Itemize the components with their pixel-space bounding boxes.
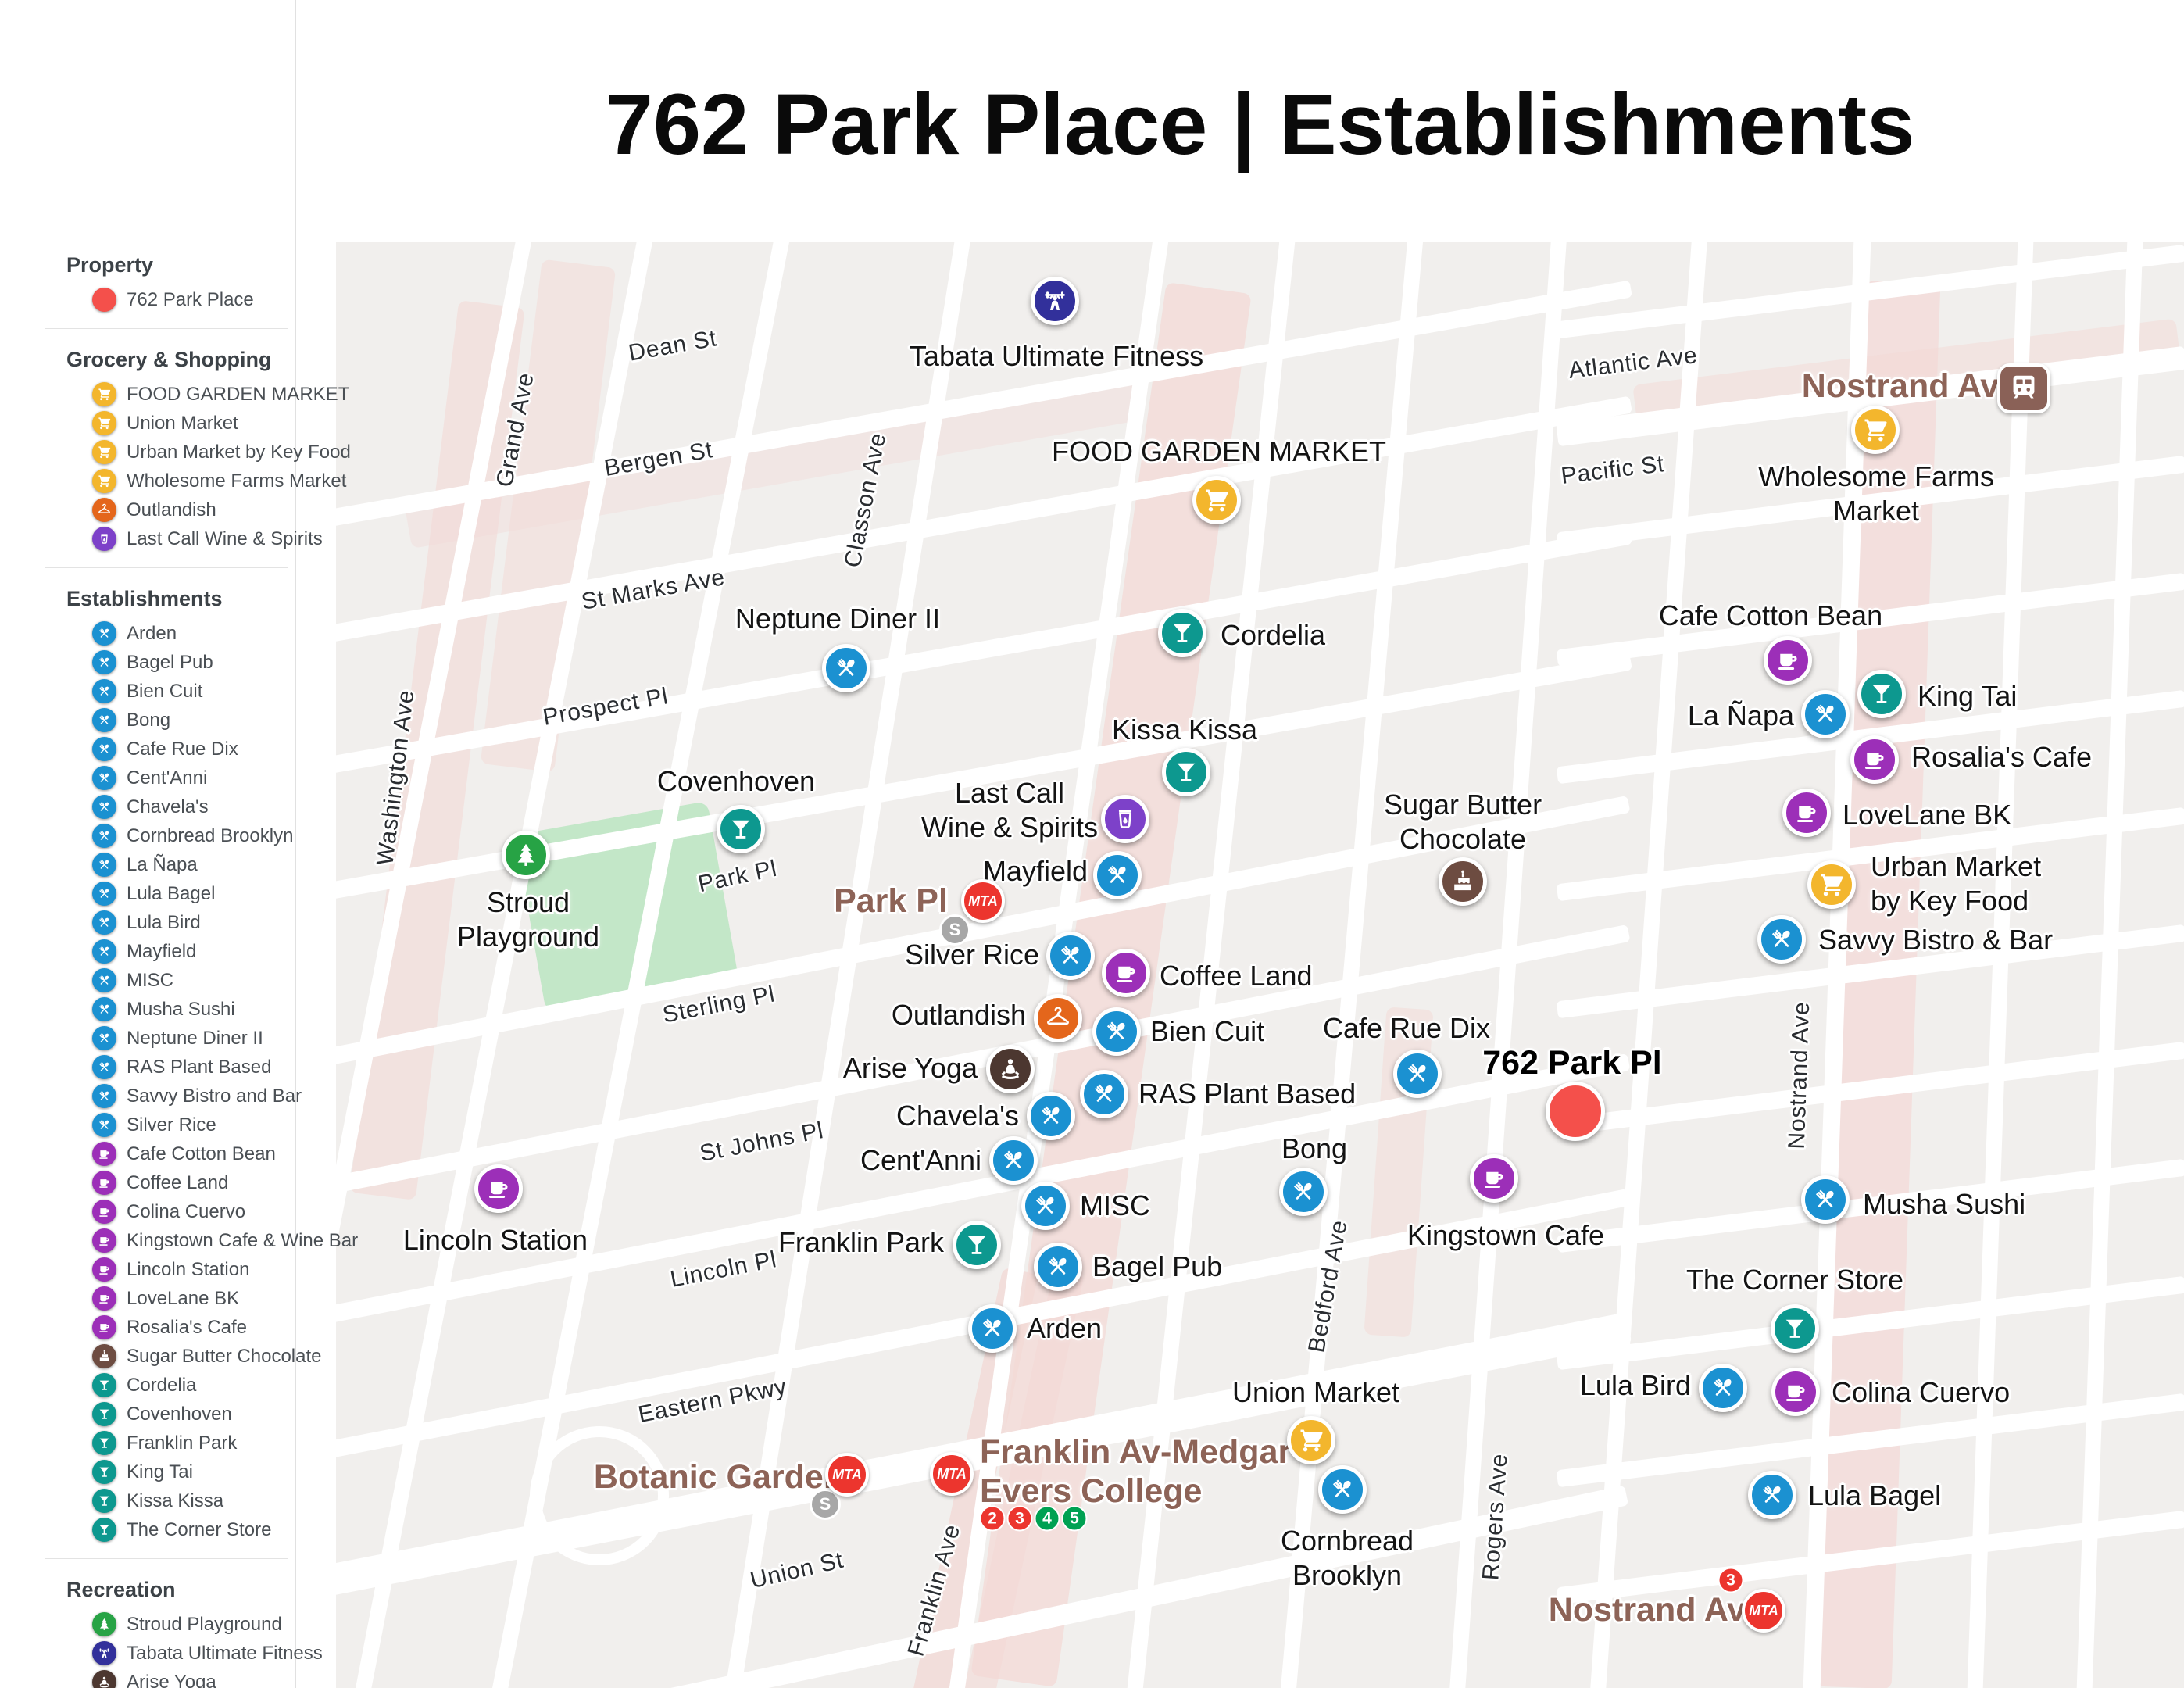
mta-logo[interactable]: MTA [961, 879, 1005, 923]
wholesome-farms-market-marker[interactable] [1851, 406, 1900, 454]
arise-yoga-marker[interactable] [986, 1045, 1035, 1093]
restaurant-icon [92, 1084, 116, 1108]
cafe-icon [484, 1175, 513, 1203]
grocery-icon [1297, 1426, 1325, 1454]
legend-item-cornbread-brooklyn[interactable]: Cornbread Brooklyn [66, 821, 288, 850]
outlandish-marker[interactable] [1034, 994, 1082, 1042]
the-corner-store-marker[interactable] [1771, 1304, 1819, 1353]
bar-icon [92, 1402, 116, 1426]
restaurant-icon [978, 1314, 1006, 1343]
legend-section-title: Grocery & Shopping [66, 348, 288, 372]
legend-item-label: Covenhoven [127, 1404, 232, 1425]
legend-item-misc[interactable]: MISC [66, 966, 288, 995]
legend-item-label: Urban Market by Key Food [127, 442, 351, 463]
legend-item-label: Silver Rice [127, 1114, 216, 1136]
grocery-icon [1861, 416, 1889, 444]
legend-item-label: Musha Sushi [127, 999, 235, 1021]
stroud-playground-marker[interactable] [502, 831, 550, 879]
grocery-icon [92, 411, 116, 435]
cafe-icon [1112, 959, 1140, 987]
legend-item-label: Lula Bird [127, 912, 201, 934]
grocery-icon [1203, 486, 1231, 514]
bar-icon [1868, 680, 1896, 708]
legend-item-label: Kingstown Cafe & Wine Bar [127, 1230, 358, 1252]
grocery-icon [92, 440, 116, 464]
legend-item-label: Wholesome Farms Market [127, 470, 346, 492]
last-call-wine-spirits-marker[interactable] [1101, 795, 1149, 843]
legend-item-label: Cafe Rue Dix [127, 738, 238, 760]
sweets-icon [1449, 867, 1477, 896]
route-badge-3: 3 [1007, 1506, 1033, 1532]
restaurant-icon [92, 795, 116, 819]
legend-section-title: Establishments [66, 587, 288, 611]
legend-item-label: RAS Plant Based [127, 1057, 271, 1078]
cafe-rue-dix-marker[interactable] [1393, 1050, 1442, 1098]
legend-item-label: La Ñapa [127, 854, 198, 876]
legend-item-label: Mayfield [127, 941, 196, 963]
legend-item-franklin-park[interactable]: Franklin Park [66, 1429, 288, 1457]
property-icon [1558, 1094, 1592, 1128]
bagel-pub-marker[interactable] [1034, 1243, 1082, 1291]
legend-item-label: The Corner Store [127, 1519, 271, 1541]
legend-item-urban-market-by-key-food[interactable]: Urban Market by Key Food [66, 438, 288, 467]
bar-icon [92, 1431, 116, 1455]
legend-item-last-call-wine-spirits[interactable]: Last Call Wine & Spirits [66, 524, 288, 553]
sugar-butter-chocolate-marker[interactable] [1439, 857, 1487, 906]
legend-item-label: Savvy Bistro and Bar [127, 1085, 302, 1107]
train-icon [2006, 370, 2042, 406]
lula-bird-marker[interactable] [1699, 1364, 1747, 1412]
legend-item-label: Colina Cuervo [127, 1201, 245, 1223]
cafe-icon [1861, 746, 1889, 774]
legend-item-union-market[interactable]: Union Market [66, 409, 288, 438]
restaurant-icon [1103, 1017, 1131, 1046]
restaurant-icon [1037, 1102, 1065, 1130]
legend-item-cordelia[interactable]: Cordelia [66, 1371, 288, 1400]
legend-item-label: Cordelia [127, 1375, 196, 1397]
restaurant-icon [92, 679, 116, 703]
legend-section-grocery-shopping: Grocery & ShoppingFOOD GARDEN MARKETUnio… [66, 348, 288, 553]
liquor-icon [92, 527, 116, 551]
cent-anni-marker[interactable] [989, 1136, 1038, 1185]
savvy-bistro-bar-marker[interactable] [1757, 915, 1806, 964]
musha-sushi-marker[interactable] [1801, 1175, 1850, 1224]
legend-section-title: Property [66, 253, 288, 277]
legend-item-silver-rice[interactable]: Silver Rice [66, 1110, 288, 1139]
bar-icon [92, 1489, 116, 1513]
restaurant-icon [92, 853, 116, 877]
legend-section-property: Property762 Park Place [66, 253, 288, 314]
sweets-icon [92, 1344, 116, 1368]
restaurant-icon [1811, 1186, 1839, 1214]
franklin-park-marker[interactable] [953, 1221, 1001, 1269]
king-tai-marker[interactable] [1857, 670, 1906, 718]
legend-item-label: Bong [127, 710, 170, 731]
legend-item-lula-bird[interactable]: Lula Bird [66, 908, 288, 937]
bar-icon [1168, 619, 1196, 647]
legend-item-label: Outlandish [127, 499, 216, 521]
legend-item-label: Bagel Pub [127, 652, 213, 674]
rosalia-s-cafe-marker[interactable] [1850, 735, 1899, 784]
legend-item-outlandish[interactable]: Outlandish [66, 495, 288, 524]
restaurant-icon [1044, 1253, 1072, 1281]
legend-item-label: Last Call Wine & Spirits [127, 528, 323, 550]
restaurant-icon [92, 997, 116, 1021]
fitness-icon [1041, 287, 1069, 315]
restaurant-icon [92, 882, 116, 906]
legend-item-arden[interactable]: Arden [66, 619, 288, 648]
legend-item-lincoln-station[interactable]: Lincoln Station [66, 1255, 288, 1284]
legend-item-colina-cuervo[interactable]: Colina Cuervo [66, 1197, 288, 1226]
762-park-pl-marker[interactable] [1546, 1082, 1605, 1141]
legend-item-label: Franklin Park [127, 1432, 237, 1454]
route-badge-3: 3 [1718, 1568, 1744, 1593]
restaurant-icon [1403, 1060, 1432, 1088]
route-badge-4: 4 [1035, 1506, 1060, 1532]
restaurant-icon [1758, 1481, 1786, 1509]
cordelia-marker[interactable] [1158, 609, 1206, 657]
bar-icon [92, 1518, 116, 1542]
bien-cuit-marker[interactable] [1092, 1007, 1141, 1056]
park-icon [512, 841, 540, 869]
colina-cuervo-marker[interactable] [1771, 1368, 1820, 1416]
lovelane-bk-marker[interactable] [1782, 789, 1831, 837]
mayfield-marker[interactable] [1093, 851, 1142, 899]
arden-marker[interactable] [968, 1304, 1017, 1353]
la-apa-marker[interactable] [1801, 690, 1850, 738]
legend-item-mayfield[interactable]: Mayfield [66, 937, 288, 966]
legend-item-label: Neptune Diner II [127, 1028, 263, 1050]
urban-market-by-key-food-marker[interactable] [1807, 860, 1856, 909]
silver-rice-marker[interactable] [1046, 932, 1095, 980]
legend-item-covenhoven[interactable]: Covenhoven [66, 1400, 288, 1429]
legend-section-recreation: RecreationStroud PlaygroundTabata Ultima… [66, 1578, 288, 1688]
restaurant-icon [832, 654, 860, 682]
legend-item-label: Stroud Playground [127, 1614, 282, 1636]
legend-item-savvy-bistro-and-bar[interactable]: Savvy Bistro and Bar [66, 1082, 288, 1110]
clothing-icon [1044, 1004, 1072, 1032]
route-badge-5: 5 [1062, 1506, 1088, 1532]
legend-item-label: Lula Bagel [127, 883, 215, 905]
legend-item-lula-bagel[interactable]: Lula Bagel [66, 879, 288, 908]
cafe-icon [92, 1200, 116, 1224]
legend-item-label: Cafe Cotton Bean [127, 1143, 276, 1165]
legend-item-label: Coffee Land [127, 1172, 228, 1194]
legend-item-la-apa[interactable]: La Ñapa [66, 850, 288, 879]
misc-marker[interactable] [1021, 1182, 1070, 1230]
legend-item-coffee-land[interactable]: Coffee Land [66, 1168, 288, 1197]
legend-item-label: Lincoln Station [127, 1259, 249, 1281]
legend-item-label: Cent'Anni [127, 767, 207, 789]
legend-item-tabata-ultimate-fitness[interactable]: Tabata Ultimate Fitness [66, 1639, 288, 1668]
legend-item-label: MISC [127, 970, 173, 992]
map-background[interactable] [336, 242, 2184, 1688]
legend-item-label: Arden [127, 623, 177, 645]
bar-icon [92, 1460, 116, 1484]
mta-logo[interactable]: MTA [1742, 1589, 1785, 1633]
legend-item-label: FOOD GARDEN MARKET [127, 384, 349, 406]
bar-icon [1781, 1314, 1809, 1343]
cafe-icon [1793, 799, 1821, 827]
lula-bagel-marker[interactable] [1748, 1471, 1796, 1519]
legend-item-label: Tabata Ultimate Fitness [127, 1643, 323, 1665]
cafe-icon [1782, 1378, 1810, 1406]
kingstown-cafe-marker[interactable] [1470, 1154, 1518, 1203]
chavela-s-marker[interactable] [1027, 1092, 1075, 1140]
lincoln-station-marker[interactable] [474, 1164, 523, 1213]
park-icon [92, 1612, 116, 1636]
legend-item-bagel-pub[interactable]: Bagel Pub [66, 648, 288, 677]
coffee-land-marker[interactable] [1102, 949, 1150, 997]
legend-item-label: Arise Yoga [127, 1672, 216, 1688]
legend-item-chavela-s[interactable]: Chavela's [66, 792, 288, 821]
restaurant-icon [92, 910, 116, 935]
restaurant-icon [1031, 1192, 1060, 1220]
restaurant-icon [1103, 861, 1131, 889]
legend-item-label: King Tai [127, 1461, 193, 1483]
ras-plant-based-marker[interactable] [1080, 1070, 1128, 1118]
bar-icon [92, 1373, 116, 1397]
cornbread-brooklyn-marker[interactable] [1318, 1465, 1367, 1514]
restaurant-icon [92, 1113, 116, 1137]
union-market-marker[interactable] [1287, 1416, 1335, 1464]
restaurant-icon [92, 650, 116, 674]
restaurant-icon [1709, 1374, 1737, 1402]
legend-item-bong[interactable]: Bong [66, 706, 288, 735]
liquor-icon [1111, 805, 1139, 833]
restaurant-icon [92, 1026, 116, 1050]
cafe-icon [92, 1257, 116, 1282]
bar-icon [963, 1231, 991, 1259]
train-station-icon [1997, 363, 2050, 413]
legend-item-ras-plant-based[interactable]: RAS Plant Based [66, 1053, 288, 1082]
legend-section-establishments: EstablishmentsArdenBagel PubBien CuitBon… [66, 587, 288, 1544]
legend-item-the-corner-store[interactable]: The Corner Store [66, 1515, 288, 1544]
cafe-icon [92, 1228, 116, 1253]
legend-item-label: Cornbread Brooklyn [127, 825, 293, 847]
legend-item-musha-sushi[interactable]: Musha Sushi [66, 995, 288, 1024]
restaurant-icon [92, 968, 116, 992]
restaurant-icon [92, 708, 116, 732]
legend-item-label: Bien Cuit [127, 681, 202, 703]
tabata-ultimate-fitness-marker[interactable] [1031, 277, 1079, 325]
cafe-icon [92, 1315, 116, 1339]
legend-item-food-garden-market[interactable]: FOOD GARDEN MARKET [66, 380, 288, 409]
clothing-icon [92, 498, 116, 522]
route-badge-2: 2 [980, 1506, 1006, 1532]
legend-item-neptune-diner-ii[interactable]: Neptune Diner II [66, 1024, 288, 1053]
cafe-icon [1480, 1164, 1508, 1193]
restaurant-icon [92, 737, 116, 761]
legend-item-label: Sugar Butter Chocolate [127, 1346, 321, 1368]
mta-logo[interactable]: MTA [930, 1452, 974, 1496]
food-garden-market-marker[interactable] [1192, 476, 1241, 524]
legend-item-arise-yoga[interactable]: Arise Yoga [66, 1668, 288, 1688]
legend-item-bien-cuit[interactable]: Bien Cuit [66, 677, 288, 706]
restaurant-icon [1090, 1080, 1118, 1108]
legend-item-label: Union Market [127, 413, 238, 435]
page: BM 762 Park Place | Establishments Prope… [0, 0, 2184, 1688]
legend-item-kissa-kissa[interactable]: Kissa Kissa [66, 1486, 288, 1515]
bong-marker[interactable] [1279, 1168, 1328, 1216]
shuttle-badge: S [939, 914, 970, 946]
kissa-kissa-marker[interactable] [1162, 748, 1210, 796]
restaurant-icon [1056, 942, 1085, 970]
restaurant-icon [92, 939, 116, 964]
legend-item-762-park-place[interactable]: 762 Park Place [66, 285, 288, 314]
neptune-diner-ii-marker[interactable] [822, 644, 870, 692]
restaurant-icon [1328, 1475, 1357, 1504]
legend-item-cafe-cotton-bean[interactable]: Cafe Cotton Bean [66, 1139, 288, 1168]
legend-item-wholesome-farms-market[interactable]: Wholesome Farms Market [66, 467, 288, 495]
restaurant-icon [92, 621, 116, 646]
grocery-icon [1818, 871, 1846, 899]
legend-item-label: LoveLane BK [127, 1288, 239, 1310]
yoga-icon [92, 1670, 116, 1688]
bar-icon [1172, 758, 1200, 786]
grocery-icon [92, 469, 116, 493]
cafe-icon [92, 1286, 116, 1311]
legend-sidebar: Property762 Park PlaceGrocery & Shopping… [0, 0, 296, 1688]
legend-item-king-tai[interactable]: King Tai [66, 1457, 288, 1486]
legend-item-label: Chavela's [127, 796, 209, 818]
legend-item-stroud-playground[interactable]: Stroud Playground [66, 1610, 288, 1639]
cafe-icon [92, 1171, 116, 1195]
covenhoven-marker[interactable] [717, 805, 765, 853]
bar-icon [727, 815, 755, 843]
restaurant-icon [92, 824, 116, 848]
mta-logo[interactable]: MTA [825, 1453, 869, 1497]
legend-item-kingstown-cafe-wine-bar[interactable]: Kingstown Cafe & Wine Bar [66, 1226, 288, 1255]
legend-section-title: Recreation [66, 1578, 288, 1602]
legend-divider [45, 567, 288, 568]
restaurant-icon [1768, 925, 1796, 953]
page-title: 762 Park Place | Establishments [336, 75, 2184, 174]
restaurant-icon [999, 1146, 1028, 1175]
legend-item-cent-anni[interactable]: Cent'Anni [66, 764, 288, 792]
restaurant-icon [1811, 700, 1839, 728]
restaurant-icon [1289, 1178, 1317, 1206]
yoga-icon [996, 1055, 1024, 1083]
legend-divider [45, 328, 288, 329]
legend-item-sugar-butter-chocolate[interactable]: Sugar Butter Chocolate [66, 1342, 288, 1371]
legend-item-cafe-rue-dix[interactable]: Cafe Rue Dix [66, 735, 288, 764]
grocery-icon [92, 382, 116, 406]
fitness-icon [92, 1641, 116, 1665]
legend-item-rosalia-s-cafe[interactable]: Rosalia's Cafe [66, 1313, 288, 1342]
restaurant-icon [92, 1055, 116, 1079]
legend-item-label: Rosalia's Cafe [127, 1317, 247, 1339]
legend-item-label: 762 Park Place [127, 289, 254, 311]
legend-item-lovelane-bk[interactable]: LoveLane BK [66, 1284, 288, 1313]
restaurant-icon [92, 766, 116, 790]
cafe-icon [1774, 646, 1802, 674]
cafe-icon [92, 1142, 116, 1166]
cafe-cotton-bean-marker[interactable] [1764, 636, 1812, 685]
legend-divider [45, 1558, 288, 1559]
property-icon [92, 288, 116, 312]
legend-item-label: Kissa Kissa [127, 1490, 223, 1512]
